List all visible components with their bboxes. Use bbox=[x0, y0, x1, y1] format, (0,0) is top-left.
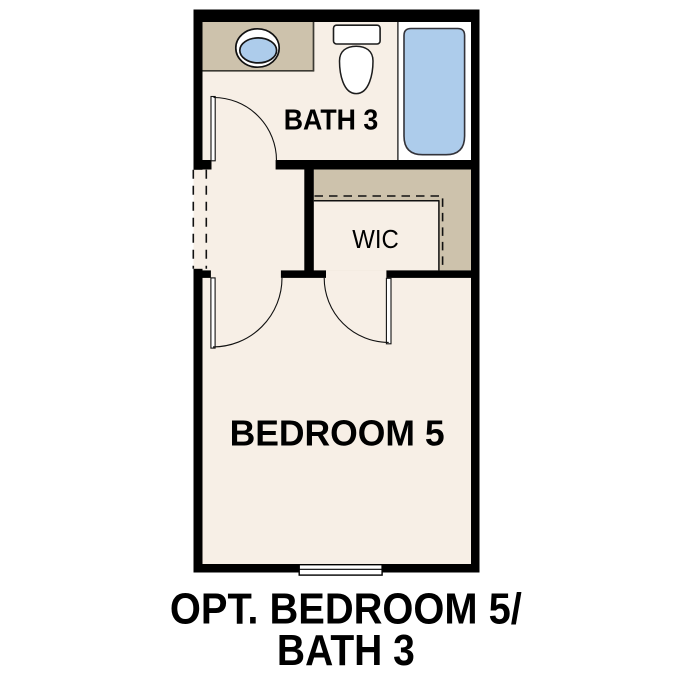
svg-text:BATH 3: BATH 3 bbox=[277, 627, 415, 675]
svg-text:BEDROOM 5: BEDROOM 5 bbox=[230, 412, 445, 453]
svg-text:WIC: WIC bbox=[352, 224, 399, 254]
svg-text:BATH 3: BATH 3 bbox=[284, 105, 379, 137]
